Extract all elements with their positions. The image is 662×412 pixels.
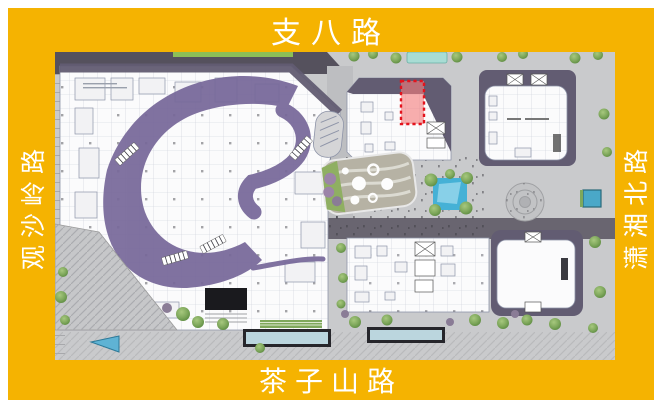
- tower-b: [479, 70, 576, 166]
- tower-a: [347, 78, 451, 160]
- highlighted-unit-marker: [401, 81, 424, 124]
- circular-plaza: [506, 183, 544, 221]
- road-name-right: 潇湘北路: [617, 142, 653, 270]
- site-plan-map: [55, 52, 615, 360]
- office-core: [415, 242, 435, 292]
- tower-c: [491, 230, 583, 316]
- site-plan-canvas: [55, 52, 615, 360]
- office-plan-building: [336, 238, 489, 312]
- yellow-frame: 支八路 茶子山路 观沙岭路 潇湘北路: [8, 8, 654, 400]
- road-name-left: 观沙岭路: [14, 142, 50, 270]
- road-name-bottom: 茶子山路: [259, 360, 403, 400]
- road-label-bottom: 茶子山路: [8, 360, 654, 400]
- reflecting-pool-2: [367, 327, 445, 343]
- bottom-sidewalk: [55, 332, 615, 360]
- location-plan-slide: 支八路 茶子山路 观沙岭路 潇湘北路: [0, 0, 662, 412]
- road-name-top: 支八路: [271, 8, 391, 52]
- reflecting-pool-1: [243, 329, 331, 347]
- tower-b-label-dashes: [507, 118, 549, 120]
- plaza-pavilion: [320, 151, 418, 216]
- ramp-structure: [312, 110, 345, 159]
- road-label-left: 观沙岭路: [8, 52, 55, 360]
- road-label-right: 潇湘北路: [615, 52, 654, 360]
- road-label-top: 支八路: [8, 8, 654, 52]
